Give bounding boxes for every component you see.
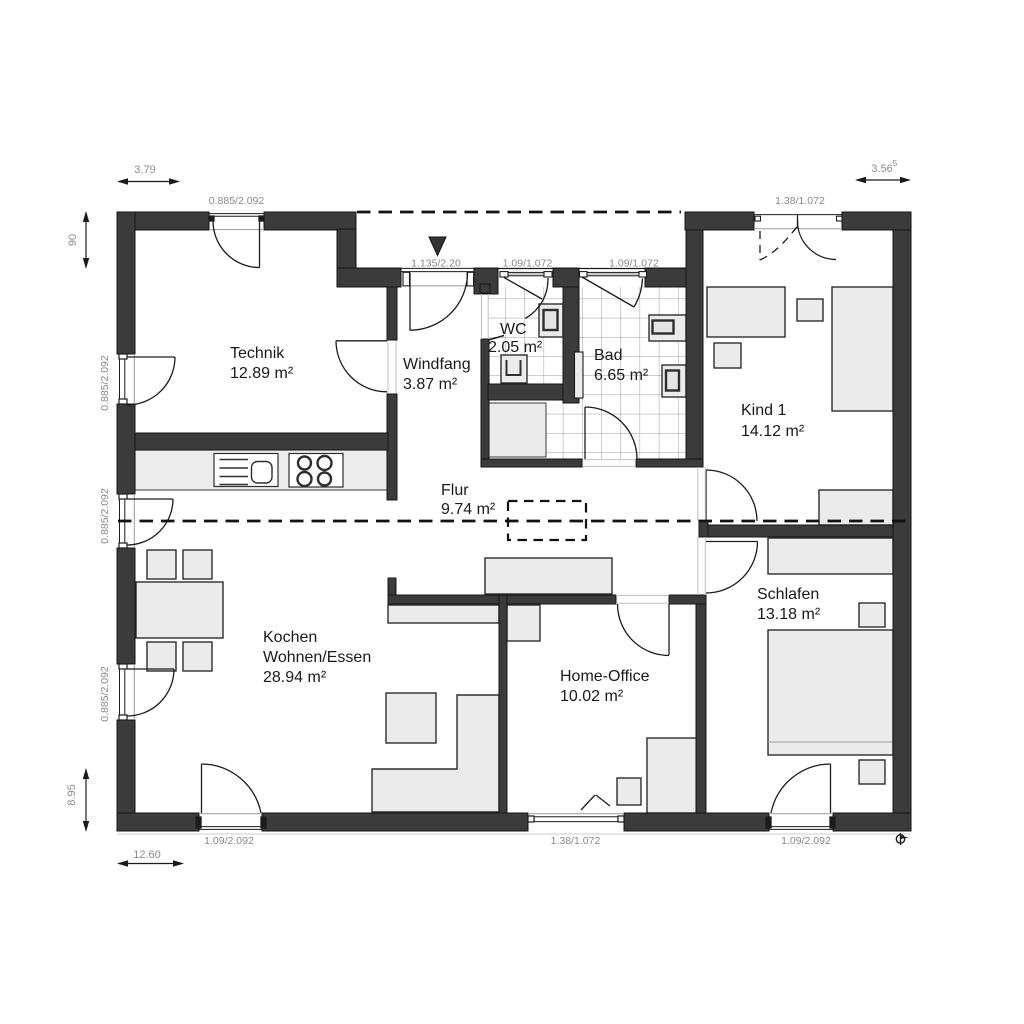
svg-text:1.09/1.072: 1.09/1.072 <box>609 258 659 270</box>
svg-text:1.38/1.072: 1.38/1.072 <box>551 835 601 847</box>
svg-text:28.94 m²: 28.94 m² <box>263 669 327 686</box>
svg-text:3.56: 3.56 <box>871 163 892 175</box>
svg-text:1.09/1.072: 1.09/1.072 <box>503 258 553 270</box>
svg-text:Schlafen: Schlafen <box>757 586 819 603</box>
svg-text:3.79: 3.79 <box>134 164 155 176</box>
svg-text:9.74 m²: 9.74 m² <box>441 501 496 518</box>
svg-text:Bad: Bad <box>594 347 622 364</box>
svg-text:1.135/2.20: 1.135/2.20 <box>411 258 461 270</box>
svg-text:0.885/2.092: 0.885/2.092 <box>99 666 111 722</box>
svg-text:0.885/2.092: 0.885/2.092 <box>209 195 265 207</box>
svg-text:Technik: Technik <box>230 345 285 362</box>
svg-text:8.95: 8.95 <box>66 784 78 805</box>
svg-text:6.65 m²: 6.65 m² <box>594 367 649 384</box>
svg-text:1.38/1.072: 1.38/1.072 <box>775 195 825 207</box>
svg-text:1.09/2.092: 1.09/2.092 <box>781 835 831 847</box>
svg-text:WC: WC <box>500 321 527 338</box>
svg-text:2.05 m²: 2.05 m² <box>488 339 543 356</box>
svg-text:0.885/2.092: 0.885/2.092 <box>99 488 111 544</box>
svg-text:90: 90 <box>67 234 79 246</box>
svg-text:3.87 m²: 3.87 m² <box>403 376 458 393</box>
svg-text:12.89 m²: 12.89 m² <box>230 365 294 382</box>
svg-text:1.09/2.092: 1.09/2.092 <box>204 835 254 847</box>
svg-text:5: 5 <box>893 158 898 168</box>
svg-text:Wohnen/Essen: Wohnen/Essen <box>263 649 371 666</box>
svg-text:14.12 m²: 14.12 m² <box>741 423 805 440</box>
svg-text:10.02 m²: 10.02 m² <box>560 688 624 705</box>
svg-text:Windfang: Windfang <box>403 356 471 373</box>
svg-text:Home-Office: Home-Office <box>560 668 650 685</box>
svg-text:12.60: 12.60 <box>133 849 161 861</box>
svg-text:Flur: Flur <box>441 482 469 499</box>
svg-text:Kind 1: Kind 1 <box>741 402 786 419</box>
svg-text:0.885/2.092: 0.885/2.092 <box>99 355 111 411</box>
svg-text:13.18 m²: 13.18 m² <box>757 606 821 623</box>
svg-text:Kochen: Kochen <box>263 629 317 646</box>
